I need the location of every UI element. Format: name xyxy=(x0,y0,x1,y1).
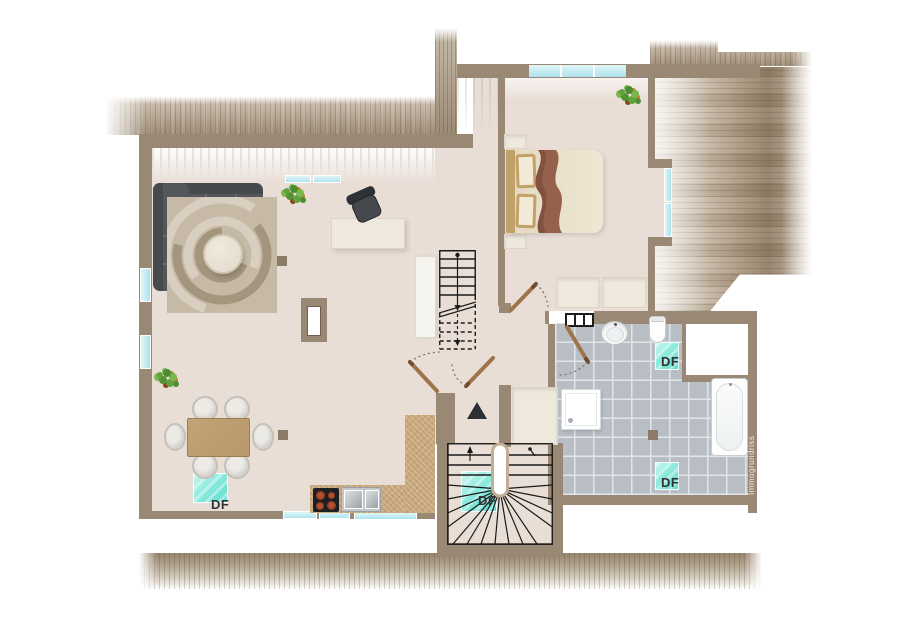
wall-bathroom-bottom xyxy=(548,495,757,505)
roof-area-right xyxy=(655,67,812,317)
window-kitchen-bottom-3 xyxy=(354,512,417,520)
watermark-text: Immogrundriss xyxy=(747,418,757,512)
burner xyxy=(316,502,324,510)
winder-staircase xyxy=(447,443,553,545)
plant-living xyxy=(284,188,290,194)
chimney-flue xyxy=(307,306,321,336)
wall-living-top xyxy=(139,134,473,148)
roof-window-label: DF xyxy=(661,355,679,368)
floor-plan: DF DF DF DF xyxy=(0,0,900,636)
wall-bedroom-door-stub xyxy=(499,303,511,313)
wardrobe-2 xyxy=(602,277,647,308)
roof-fade xyxy=(792,40,812,66)
window-living-top-1 xyxy=(285,175,311,183)
roof-area-bottom xyxy=(139,553,762,589)
wall-kitchen-vestibule xyxy=(436,393,455,444)
roof-area-top-left xyxy=(105,96,437,135)
roof-fade xyxy=(139,553,157,589)
radiator-segment xyxy=(576,315,585,325)
wall-closet-side xyxy=(499,385,511,447)
roof-fade xyxy=(650,40,812,48)
floor-outlet-dining xyxy=(278,430,288,440)
roof-fade xyxy=(435,28,457,42)
roof-fade xyxy=(782,67,812,317)
kitchen-sink xyxy=(341,487,381,512)
hall-closet xyxy=(512,387,558,445)
wall-bathroom-top-a xyxy=(545,311,549,324)
washbasin-bowl xyxy=(606,327,624,342)
dining-chair xyxy=(164,423,186,451)
wall-bedroom-right-lower xyxy=(648,246,655,311)
window-pane xyxy=(595,65,626,77)
bathtub xyxy=(711,378,748,456)
toilet-tank xyxy=(651,317,664,322)
wall-living-left xyxy=(139,134,152,519)
floor-outlet-living xyxy=(277,256,287,266)
floor-drain xyxy=(648,430,658,440)
wall-bedroom-left xyxy=(498,78,505,306)
double-bed xyxy=(506,150,603,233)
chimney xyxy=(301,298,327,342)
burner xyxy=(327,501,336,510)
radiator xyxy=(565,313,594,327)
window-bedroom-triple xyxy=(529,65,626,77)
dining-table xyxy=(187,418,250,457)
burner xyxy=(328,492,335,499)
faucet-dot xyxy=(729,383,732,386)
window-pane xyxy=(562,65,593,77)
wardrobe-1 xyxy=(556,277,600,308)
shower-tray xyxy=(561,389,601,430)
kitchen-counter-vertical xyxy=(405,415,435,513)
bathroom-niche-void xyxy=(686,323,748,375)
cooktop xyxy=(313,488,339,512)
wall-niche-stub-bottom xyxy=(648,237,672,246)
toilet xyxy=(649,316,666,343)
roof-window-label: DF xyxy=(211,498,229,511)
sink-basin-right xyxy=(365,490,379,509)
coffee-table xyxy=(203,234,243,274)
roof-gable-column xyxy=(435,28,457,140)
wall-bedroom-right-upper xyxy=(648,64,655,160)
roof-dormer-top-right xyxy=(650,40,812,66)
wall-bathroom-niche-left xyxy=(682,323,686,382)
window-pane xyxy=(529,65,560,77)
washbasin xyxy=(601,321,628,345)
roof-fade xyxy=(105,96,437,104)
roof-window-label: DF xyxy=(661,476,679,489)
window-bedroom-niche-1 xyxy=(664,168,672,202)
wall-niche-stub-top xyxy=(648,159,672,168)
nightstand-top xyxy=(504,134,527,149)
nightstand-bottom xyxy=(504,234,527,249)
sink-basin-left xyxy=(344,490,363,509)
floor-bedroom-niche xyxy=(648,160,665,244)
shower-drain xyxy=(568,418,573,423)
bed-blanket xyxy=(506,150,603,233)
faucet-dot xyxy=(614,323,617,326)
straight-staircase xyxy=(439,250,476,350)
radiator-segment xyxy=(567,315,576,325)
roof-fade xyxy=(744,553,762,589)
plant-bedroom xyxy=(619,89,625,95)
plant-dining xyxy=(157,372,163,378)
roof-window-label: DF xyxy=(478,494,496,507)
radiator-segment xyxy=(585,315,592,325)
window-bedroom-niche-2 xyxy=(664,203,672,237)
stair-rail-wall xyxy=(415,256,436,338)
dining-chair xyxy=(252,423,274,451)
window-left-1 xyxy=(140,268,151,302)
sofa-backrest xyxy=(153,183,163,291)
window-left-2 xyxy=(140,335,151,369)
burner xyxy=(316,491,325,500)
bathtub-inner xyxy=(716,383,743,451)
entrance-arrow xyxy=(467,402,487,419)
window-living-top-2 xyxy=(313,175,341,183)
